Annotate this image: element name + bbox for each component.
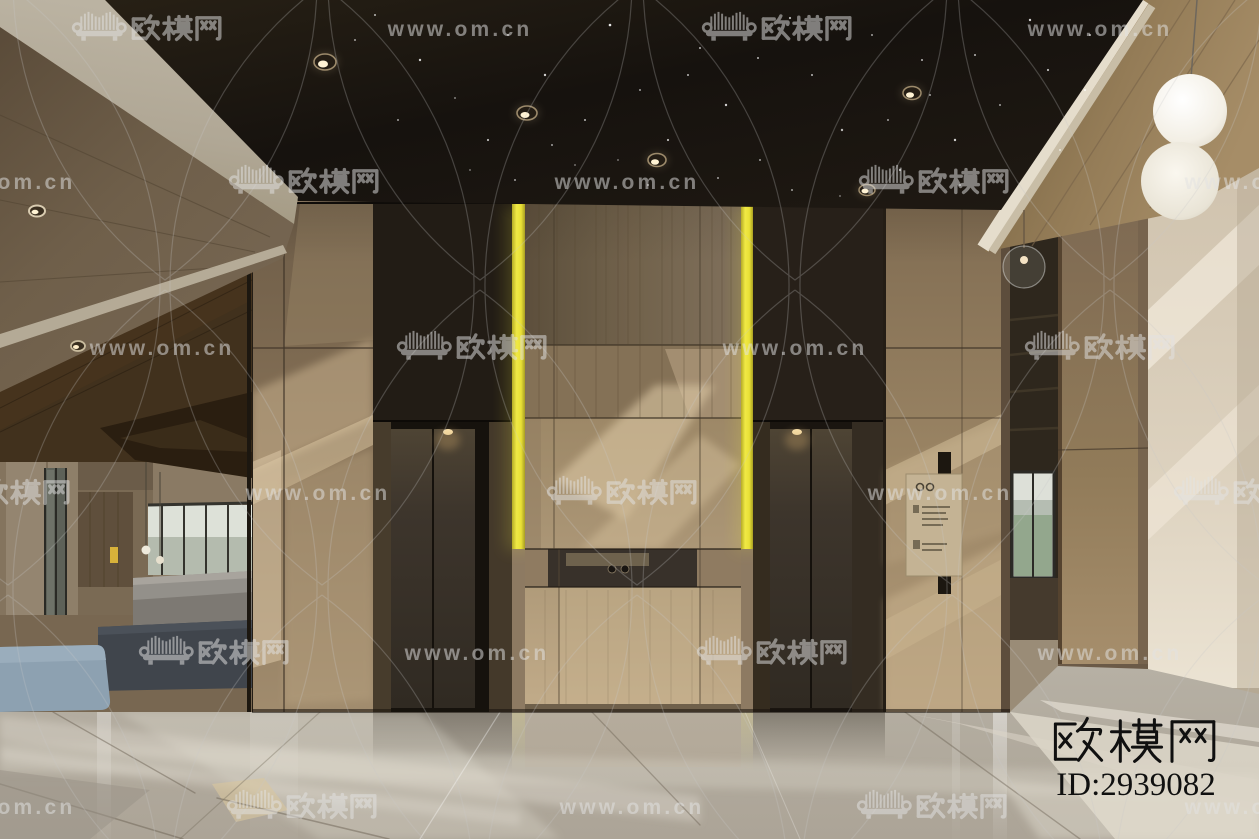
svg-text:ID:2939082: ID:2939082: [1056, 767, 1216, 803]
